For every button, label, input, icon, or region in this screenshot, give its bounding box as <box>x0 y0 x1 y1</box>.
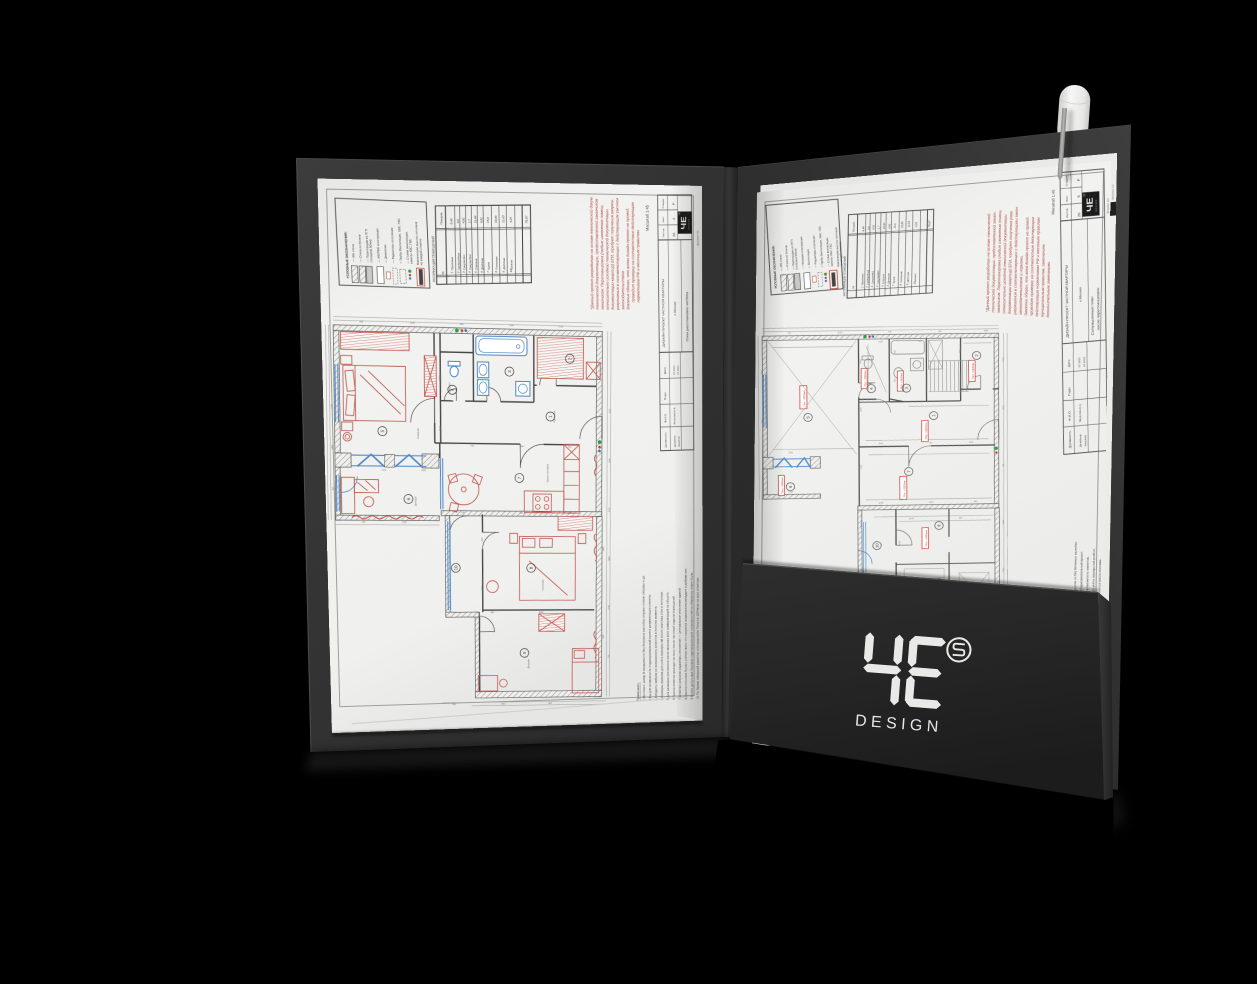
svg-text:Санузел№1: Санузел№1 <box>462 254 466 270</box>
svg-text:DESIGN: DESIGN <box>689 218 691 229</box>
svg-text:3120: 3120 <box>440 425 442 431</box>
svg-text:7.Отметки санузлов радиаторы о: 7.Отметки санузлов радиаторы отопления —… <box>678 587 682 700</box>
svg-text:Лист: Лист <box>662 216 665 223</box>
svg-text:№: № <box>852 286 855 289</box>
svg-text:Санузел№2: Санузел№2 <box>468 254 472 270</box>
svg-text:8.Высота потолков была с учёто: 8.Высота потолков была с учётом пола, чт… <box>684 568 688 700</box>
svg-text:Спальня: Спальня <box>474 258 478 270</box>
svg-text:Пол: +2800мм: Пол: +2800мм <box>924 530 928 546</box>
svg-text:Балкон: Балкон <box>913 273 917 282</box>
svg-text:6: 6 <box>480 271 484 273</box>
svg-text:18,84: 18,84 <box>474 215 478 223</box>
svg-text:3400: 3400 <box>909 518 914 520</box>
svg-text:Прихожая: Прихожая <box>553 410 557 422</box>
svg-text:Санузел№1: Санузел№1 <box>870 270 874 285</box>
svg-text:Прихожая: Прихожая <box>450 257 454 271</box>
svg-text:Кухня-гостиная: Кухня-гостиная <box>546 464 550 483</box>
svg-text:Кухня: Кухня <box>487 262 491 270</box>
svg-text:Примечание:: Примечание: <box>636 682 640 701</box>
svg-text:Санузел№2: Санузел№2 <box>876 270 880 285</box>
svg-text:1200: 1200 <box>929 502 934 504</box>
svg-text:Дата: Дата <box>663 367 666 374</box>
svg-text:4,81: 4,81 <box>462 217 466 223</box>
svg-text:5.Для размеров уточняется посл: 5.Для размеров уточняется после монтажа … <box>666 591 670 700</box>
svg-text:Гостиная: Гостиная <box>541 579 545 590</box>
svg-text:76,67: 76,67 <box>525 216 529 224</box>
svg-text:18,84: 18,84 <box>882 222 886 229</box>
svg-text:Дизайнер: Дизайнер <box>1078 434 1082 448</box>
svg-text:Яковлева Е.А.: Яковлева Е.А. <box>673 407 676 425</box>
svg-text:15,8: 15,8 <box>893 223 897 229</box>
svg-text:Должность: Должность <box>1068 430 1072 448</box>
svg-text:Примечание:: Примечание: <box>1066 606 1070 626</box>
svg-text:ЧЕ: ЧЕ <box>680 216 688 229</box>
svg-text:Масштаб 1:45: Масштаб 1:45 <box>1050 190 1055 215</box>
svg-text:12,63: 12,63 <box>501 215 505 223</box>
svg-text:Спальня: Спальня <box>881 273 885 284</box>
svg-text:3400: 3400 <box>332 444 334 450</box>
svg-text:Ситуационный план: Ситуационный план <box>1090 295 1094 335</box>
svg-text:дополнительным замечаниям.: дополнительным замечаниям. <box>1045 261 1051 318</box>
svg-text:1200: 1200 <box>788 492 794 494</box>
svg-text:нормативам РФ и местным правил: нормативам РФ и местным правилам. <box>635 229 640 302</box>
svg-text:Гардеробная: Гардеробная <box>457 253 461 271</box>
svg-text:1,7: 1,7 <box>468 219 472 223</box>
svg-text:6.Трасса отметки проходит по п: 6.Трасса отметки проходит по полу после … <box>672 595 676 700</box>
svg-text:Прихожая: Прихожая <box>860 273 864 285</box>
svg-text:Дизайнер: Дизайнер <box>673 435 676 448</box>
svg-text:Гостиная: Гостиная <box>899 271 903 283</box>
svg-text:ЭКСПЛИКАЦИЯ ПОМЕЩЕНИЙ: ЭКСПЛИКАЦИЯ ПОМЕЩЕНИЙ <box>842 255 847 296</box>
svg-text:Ⓢ: Ⓢ <box>677 212 681 215</box>
svg-text:Стадия: Стадия <box>661 198 664 208</box>
svg-text:Спальня: Спальня <box>416 428 420 439</box>
svg-text:1600: 1600 <box>509 325 514 327</box>
svg-text:7: 7 <box>517 476 522 479</box>
svg-text:3120: 3120 <box>878 341 884 343</box>
svg-text:15,8: 15,8 <box>486 217 490 223</box>
svg-text:18,86: 18,86 <box>900 221 904 228</box>
svg-text:2250: 2250 <box>539 612 544 614</box>
svg-text:07.2021: 07.2021 <box>1082 356 1086 367</box>
svg-text:3.Габариты мебели не возможнос: 3.Габариты мебели не возможность клиенто… <box>654 606 658 701</box>
svg-text:Детская: Детская <box>906 271 910 283</box>
svg-text:1600: 1600 <box>879 609 884 611</box>
svg-text:10.По Время обмерной разметки: 10.По Время обмерной разметки и погрешно… <box>696 577 700 699</box>
svg-text:76,67: 76,67 <box>927 220 931 228</box>
svg-text:Гардеробная: Гардеробная <box>866 269 870 285</box>
svg-text:8: 8 <box>529 566 534 569</box>
svg-text:2780: 2780 <box>879 503 884 505</box>
svg-text:проводит проверку на соответст: проводит проверку на соответствие действ… <box>630 202 635 302</box>
svg-text:26: 26 <box>673 233 676 237</box>
svg-text:3120: 3120 <box>609 507 611 512</box>
svg-text:Балкон: Балкон <box>509 260 513 270</box>
svg-text:4,81: 4,81 <box>480 217 484 223</box>
svg-text:Пол: +2800мм: Пол: +2800мм <box>902 480 906 497</box>
svg-text:3: 3 <box>462 271 466 273</box>
svg-text:Должность: Должность <box>664 431 667 447</box>
svg-text:Площадь: Площадь <box>439 212 443 225</box>
svg-text:4: 4 <box>468 271 472 273</box>
svg-text:г.Москва: г.Москва <box>673 301 676 315</box>
svg-text:Детская: Детская <box>480 258 484 271</box>
svg-text:4.Размеры проёмов для учёта пе: 4.Размеры проёмов для учёта перекрытий п… <box>660 591 664 700</box>
svg-text:4,26: 4,26 <box>509 217 513 223</box>
svg-text:2: 2 <box>456 271 460 274</box>
svg-text:формат А3: формат А3 <box>1106 198 1110 214</box>
svg-text:2250: 2250 <box>568 513 573 515</box>
svg-text:2250: 2250 <box>610 408 612 414</box>
svg-text:9.Более детальные базовые отде: 9.Более детальные базовые отделки размер… <box>690 572 694 700</box>
svg-text:Яковлева Е.А.: Яковлева Е.А. <box>1078 403 1082 422</box>
svg-text:12,63: 12,63 <box>907 221 911 228</box>
svg-text:10: 10 <box>454 565 460 570</box>
svg-text:07.2021: 07.2021 <box>1077 357 1081 368</box>
svg-text:3,6: 3,6 <box>456 219 460 223</box>
svg-text:9: 9 <box>522 651 527 654</box>
svg-text:07.2021: 07.2021 <box>672 365 675 375</box>
svg-text:Пол: +2800мм: Пол: +2800мм <box>924 423 928 440</box>
svg-text:Листов: Листов <box>1065 208 1069 219</box>
svg-text:1950: 1950 <box>984 330 989 332</box>
svg-text:г.Москва: г.Москва <box>1079 287 1083 302</box>
svg-text:Стадия: Стадия <box>1065 175 1069 186</box>
svg-text:формат А3: формат А3 <box>1111 184 1115 200</box>
svg-text:Масштаб 1:45: Масштаб 1:45 <box>645 204 650 231</box>
svg-text:Ф.И.О.: Ф.И.О. <box>664 413 667 423</box>
svg-text:3120: 3120 <box>381 470 387 472</box>
svg-text:Заказчик: Заказчик <box>677 435 680 447</box>
svg-text:ЧЕ: ЧЕ <box>1085 197 1095 213</box>
svg-text:после перепланировки: после перепланировки <box>1096 287 1100 331</box>
svg-text:2780: 2780 <box>331 403 333 409</box>
svg-text:2250: 2250 <box>440 375 442 381</box>
svg-text:26: 26 <box>1077 211 1082 217</box>
svg-text:Ⓢ: Ⓢ <box>1082 192 1087 197</box>
svg-text:Детская: Детская <box>414 496 418 506</box>
svg-text:Пол: +2800мм: Пол: +2800мм <box>781 477 784 493</box>
svg-text:Пол: +2800мм: Пол: +2800мм <box>802 390 806 407</box>
svg-text:4,26: 4,26 <box>914 221 918 227</box>
svg-text:Детская: Детская <box>527 659 531 669</box>
svg-text:2780: 2780 <box>609 604 611 609</box>
svg-text:2250: 2250 <box>838 332 844 334</box>
svg-text:8,48: 8,48 <box>861 226 865 232</box>
svg-text:5: 5 <box>380 430 386 433</box>
svg-text:5: 5 <box>474 271 478 273</box>
svg-text:1600: 1600 <box>410 323 416 325</box>
svg-text:План расстановки мебели: План расстановки мебели <box>685 291 690 341</box>
svg-text:1600: 1600 <box>609 458 611 463</box>
svg-text:1: 1 <box>450 271 454 273</box>
svg-text:1600: 1600 <box>609 556 611 561</box>
svg-text:9: 9 <box>502 271 506 273</box>
svg-text:2.Вы для возможность подразуме: 2.Вы для возможность подразумевальный пр… <box>648 594 652 701</box>
svg-text:10: 10 <box>875 543 880 548</box>
svg-text:2250: 2250 <box>482 585 484 590</box>
svg-text:Подп.: Подп. <box>1068 386 1072 395</box>
svg-text:Детская: Детская <box>886 273 890 285</box>
svg-text:2250: 2250 <box>402 522 407 524</box>
svg-text:07.2021: 07.2021 <box>676 365 679 375</box>
svg-text:3: 3 <box>507 370 513 373</box>
svg-text:Гостиная: Гостиная <box>495 256 499 269</box>
svg-text:1600: 1600 <box>501 704 506 706</box>
svg-text:5: 5 <box>1076 194 1081 198</box>
svg-text:Детская: Детская <box>502 257 506 270</box>
svg-text:4: 4 <box>672 218 675 220</box>
svg-text:Пол: +2800мм: Пол: +2800мм <box>872 579 875 595</box>
svg-text:1950: 1950 <box>879 443 885 445</box>
svg-text:Ф.И.О.: Ф.И.О. <box>1068 410 1072 421</box>
svg-text:4,81: 4,81 <box>871 224 875 230</box>
svg-text:2: 2 <box>568 357 573 360</box>
svg-text:Кухня: Кухня <box>892 276 896 283</box>
svg-text:Пол: +2800мм: Пол: +2800мм <box>971 363 975 380</box>
svg-text:Листов: Листов <box>662 228 665 238</box>
svg-text:Лист: Лист <box>1065 195 1069 203</box>
svg-text:3400: 3400 <box>421 470 426 472</box>
svg-text:2780: 2780 <box>788 452 794 454</box>
svg-text:3120: 3120 <box>558 326 563 328</box>
svg-text:Р: Р <box>1076 178 1081 182</box>
svg-text:разрешения в соответствующих с: разрешения в соответствующих с действующ… <box>615 198 620 311</box>
svg-text:8: 8 <box>494 271 498 273</box>
svg-text:Санузел: Санузел <box>447 382 451 393</box>
svg-text:Заказчик: Заказчик <box>1083 434 1087 447</box>
svg-text:Площадь: Площадь <box>852 221 855 232</box>
svg-text:Дата: Дата <box>1067 359 1071 367</box>
svg-text:6: 6 <box>406 497 412 500</box>
svg-text:1600: 1600 <box>603 546 605 551</box>
svg-text:Пол: +2800мм: Пол: +2800мм <box>864 370 867 386</box>
svg-text:DESIGN: DESIGN <box>1096 199 1098 211</box>
svg-text:1.На плане: анкер В покрытии н: 1.На плане: анкер В покрытии не без бето… <box>642 575 646 701</box>
svg-text:формат А3: формат А3 <box>696 230 700 245</box>
svg-text:7: 7 <box>486 271 490 273</box>
svg-text:1950: 1950 <box>969 442 974 444</box>
svg-text:Подп.: Подп. <box>664 392 667 400</box>
svg-text:2250: 2250 <box>519 446 524 448</box>
svg-text:8,48: 8,48 <box>450 218 454 224</box>
svg-text:18,86: 18,86 <box>494 215 498 223</box>
svg-text:законодательством.: законодательством. <box>620 270 625 311</box>
svg-text:4,81: 4,81 <box>887 223 891 229</box>
